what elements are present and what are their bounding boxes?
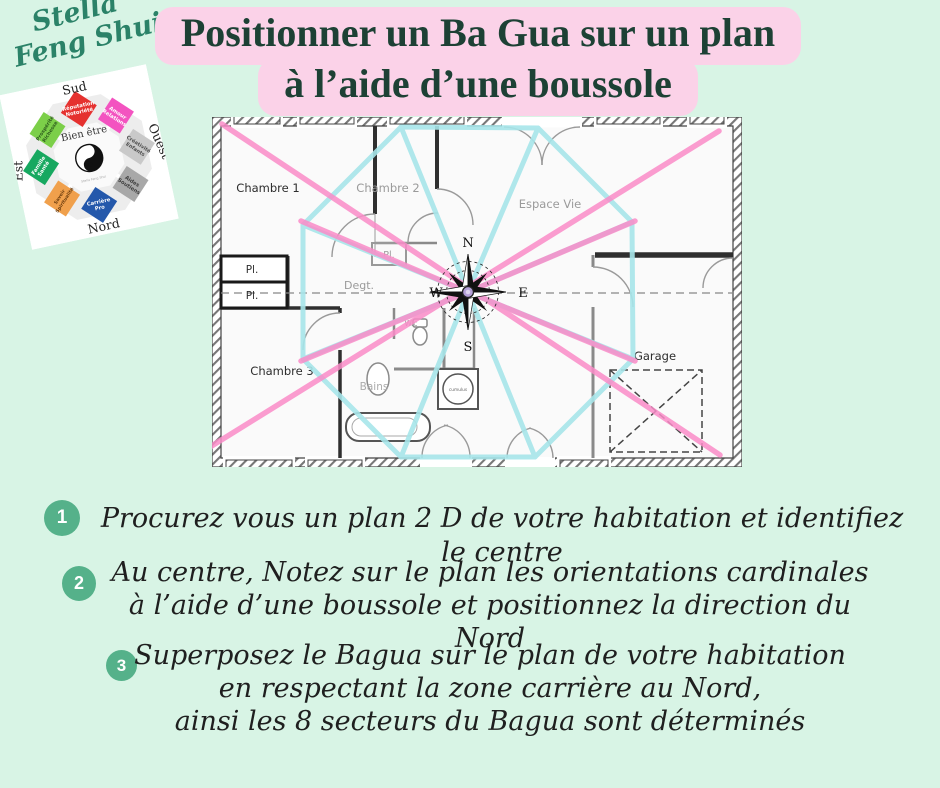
compass-w: W: [429, 286, 443, 301]
title-line1: Positionner un Ba Gua sur un plan: [155, 7, 801, 65]
room-chambre3: Chambre 3: [250, 364, 313, 378]
room-chambre2: Chambre 2: [356, 181, 419, 195]
floor-plan: Chambre 1 Chambre 2 Espace Vie Pl. Degt.…: [212, 117, 742, 467]
compass-s: S: [464, 340, 473, 355]
room-garage: Garage: [634, 349, 676, 363]
toilet-icon: [413, 327, 427, 345]
room-bains: Bains: [360, 381, 389, 393]
infographic-canvas: Stella Feng Shui Réputation Notoriété Am…: [0, 0, 940, 788]
step2-badge: 2: [62, 566, 96, 601]
step3-line1: Superposez le Bagua sur le plan de votre…: [120, 639, 860, 672]
room-pl-top: Pl.: [246, 264, 259, 276]
room-chambre1: Chambre 1: [236, 181, 299, 195]
compass-n: N: [462, 236, 473, 251]
logo-direction-est: Est: [10, 161, 25, 182]
room-degagement: Degt.: [344, 279, 374, 292]
room-pl-bottom: Pl.: [246, 290, 259, 302]
step1-badge: 1: [44, 500, 80, 536]
step3-line3: ainsi les 8 secteurs du Bagua sont déter…: [120, 705, 860, 738]
compass-e: E: [518, 286, 528, 301]
title-line2: à l’aide d’une boussole: [258, 58, 698, 116]
page-title: Positionner un Ba Gua sur un plan à l’ai…: [140, 7, 816, 123]
step2-line1: Au centre, Notez sur le plan les orienta…: [95, 556, 885, 589]
room-cumulus: cumulus: [449, 387, 468, 393]
room-espace-vie: Espace Vie: [519, 197, 582, 211]
step3-text: Superposez le Bagua sur le plan de votre…: [120, 639, 860, 738]
step3-line2: en respectant la zone carrière au Nord,: [120, 672, 860, 705]
